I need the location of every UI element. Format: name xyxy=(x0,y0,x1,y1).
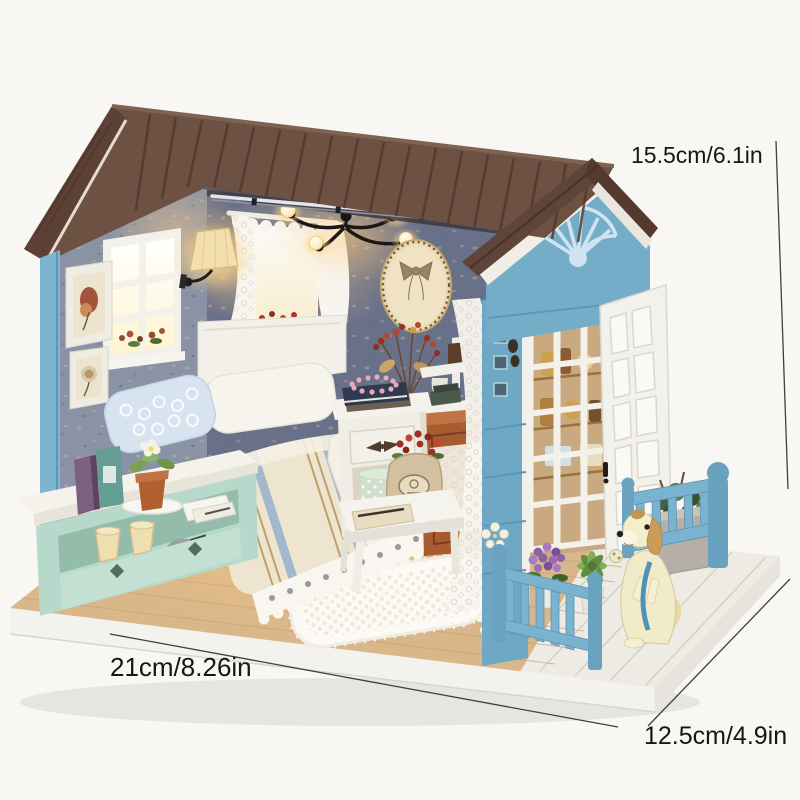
wall-lamp xyxy=(172,222,256,294)
height-dimension-label: 15.5cm/6.1in xyxy=(631,142,763,169)
width-dimension-label: 21cm/8.26in xyxy=(110,652,252,683)
toy-ball xyxy=(610,550,623,563)
oval-bow-plaque xyxy=(381,240,451,332)
picture-frame-bottom xyxy=(70,347,108,409)
door-handle xyxy=(603,462,608,477)
height-dimension-line xyxy=(776,141,788,489)
product-photo: 15.5cm/6.1in 21cm/8.26in 12.5cm/4.9in xyxy=(0,0,800,800)
picture-frame-top xyxy=(66,261,112,348)
depth-dimension-label: 12.5cm/4.9in xyxy=(644,722,787,751)
